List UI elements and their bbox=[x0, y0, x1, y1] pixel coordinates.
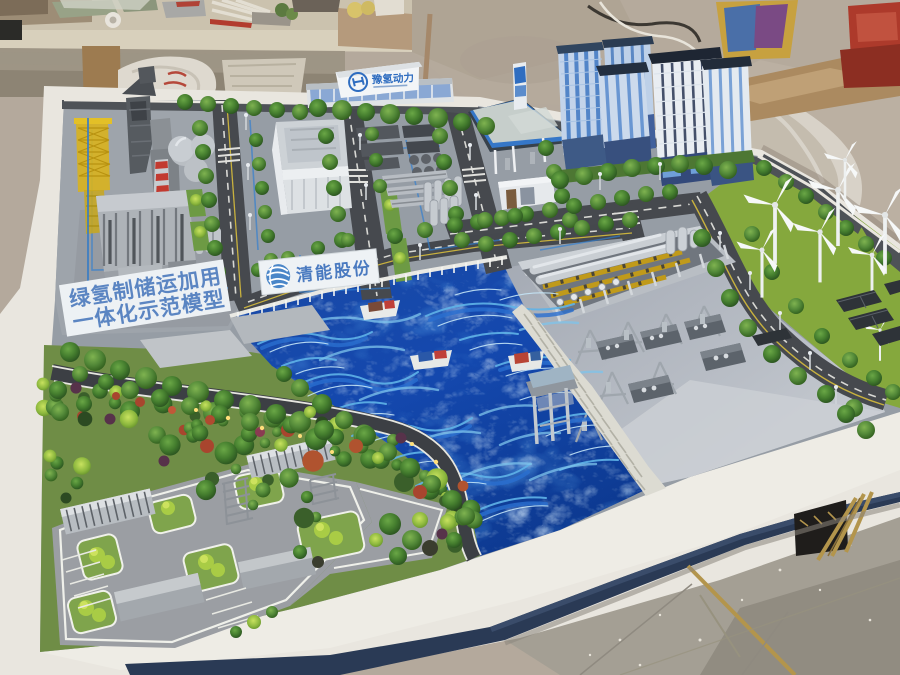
svg-text:豫氢动力: 豫氢动力 bbox=[372, 71, 415, 86]
